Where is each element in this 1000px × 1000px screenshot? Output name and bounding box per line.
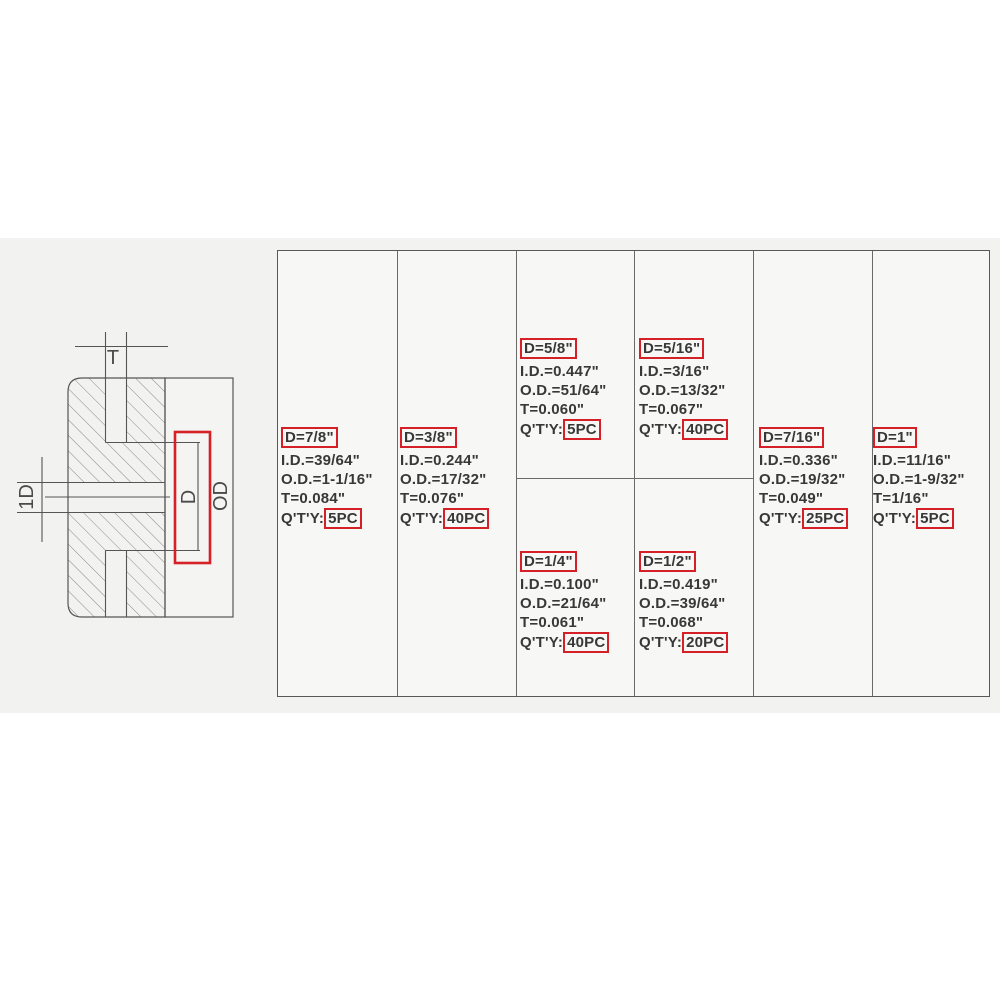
od-value: O.D.=1-9/32" xyxy=(873,470,965,489)
id-value: I.D.=0.419" xyxy=(639,575,728,594)
t-value: T=0.061" xyxy=(520,613,609,632)
t-value: T=1/16" xyxy=(873,489,965,508)
t-value: T=0.076" xyxy=(400,489,489,508)
od-value: O.D.=1-1/16" xyxy=(281,470,373,489)
column-divider-4 xyxy=(753,251,754,696)
spec-table: D=7/8" I.D.=39/64" O.D.=1-1/16" T=0.084"… xyxy=(277,250,990,697)
od-value: O.D.=13/32" xyxy=(639,381,728,400)
qty-value: 40PC xyxy=(563,632,609,653)
bottom-groove-slot xyxy=(106,551,127,617)
d-value: D=3/8" xyxy=(400,427,457,448)
qty-line: Q'T'Y:25PC xyxy=(759,508,848,527)
id-value: I.D.=0.244" xyxy=(400,451,489,470)
spec-cell-5-8: D=5/8" I.D.=0.447" O.D.=51/64" T=0.060" … xyxy=(520,338,606,438)
column-divider-3 xyxy=(634,251,635,696)
id-value: I.D.=39/64" xyxy=(281,451,373,470)
t-value: T=0.084" xyxy=(281,489,373,508)
center-bore-channel xyxy=(69,483,165,513)
qty-label: Q'T'Y: xyxy=(873,510,916,527)
qty-line: Q'T'Y:5PC xyxy=(281,508,373,527)
qty-label: Q'T'Y: xyxy=(400,510,443,527)
bore-dimension-label: 1D xyxy=(16,484,38,510)
qty-label: Q'T'Y: xyxy=(639,634,682,651)
groove-diameter-label: D xyxy=(178,490,200,504)
qty-line: Q'T'Y:40PC xyxy=(400,508,489,527)
spec-cell-1-4: D=1/4" I.D.=0.100" O.D.=21/64" T=0.061" … xyxy=(520,551,609,651)
id-value: I.D.=0.447" xyxy=(520,362,606,381)
row-divider-middle-columns xyxy=(516,478,753,479)
od-value: O.D.=17/32" xyxy=(400,470,489,489)
id-value: I.D.=0.336" xyxy=(759,451,848,470)
qty-value: 25PC xyxy=(802,508,848,529)
spec-cell-1: D=1" I.D.=11/16" O.D.=1-9/32" T=1/16" Q'… xyxy=(873,427,965,527)
id-value: I.D.=11/16" xyxy=(873,451,965,470)
t-value: T=0.049" xyxy=(759,489,848,508)
qty-label: Q'T'Y: xyxy=(281,510,324,527)
spec-cell-1-2: D=1/2" I.D.=0.419" O.D.=39/64" T=0.068" … xyxy=(639,551,728,651)
column-divider-1 xyxy=(397,251,398,696)
od-value: O.D.=19/32" xyxy=(759,470,848,489)
qty-value: 5PC xyxy=(563,419,601,440)
grommet-cross-section-diagram: T 1D D OD xyxy=(0,320,260,640)
column-divider-2 xyxy=(516,251,517,696)
d-value: D=1/2" xyxy=(639,551,696,572)
qty-label: Q'T'Y: xyxy=(520,634,563,651)
qty-label: Q'T'Y: xyxy=(759,510,802,527)
qty-value: 40PC xyxy=(682,419,728,440)
spec-cell-3-8: D=3/8" I.D.=0.244" O.D.=17/32" T=0.076" … xyxy=(400,427,489,527)
t-value: T=0.060" xyxy=(520,400,606,419)
t-dimension-lines xyxy=(75,332,168,378)
qty-line: Q'T'Y:40PC xyxy=(520,632,609,651)
t-value: T=0.067" xyxy=(639,400,728,419)
qty-label: Q'T'Y: xyxy=(520,421,563,438)
qty-value: 40PC xyxy=(443,508,489,529)
id-value: I.D.=3/16" xyxy=(639,362,728,381)
qty-label: Q'T'Y: xyxy=(639,421,682,438)
od-value: O.D.=21/64" xyxy=(520,594,609,613)
spec-cell-7-16: D=7/16" I.D.=0.336" O.D.=19/32" T=0.049"… xyxy=(759,427,848,527)
spec-cell-7-8: D=7/8" I.D.=39/64" O.D.=1-1/16" T=0.084"… xyxy=(281,427,373,527)
qty-value: 20PC xyxy=(682,632,728,653)
outer-diameter-label: OD xyxy=(210,481,232,511)
d-value: D=1/4" xyxy=(520,551,577,572)
qty-value: 5PC xyxy=(324,508,362,529)
qty-line: Q'T'Y:40PC xyxy=(639,419,728,438)
top-groove-slot xyxy=(106,379,127,443)
d-value: D=5/8" xyxy=(520,338,577,359)
od-value: O.D.=39/64" xyxy=(639,594,728,613)
qty-line: Q'T'Y:5PC xyxy=(520,419,606,438)
d-value: D=7/16" xyxy=(759,427,824,448)
t-value: T=0.068" xyxy=(639,613,728,632)
qty-value: 5PC xyxy=(916,508,954,529)
d-value: D=5/16" xyxy=(639,338,704,359)
d-value: D=1" xyxy=(873,427,917,448)
qty-line: Q'T'Y:5PC xyxy=(873,508,965,527)
d-value: D=7/8" xyxy=(281,427,338,448)
spec-cell-5-16: D=5/16" I.D.=3/16" O.D.=13/32" T=0.067" … xyxy=(639,338,728,438)
page: T 1D D OD D=7/8" I.D.=39/64" O.D.=1-1/16… xyxy=(0,0,1000,1000)
id-value: I.D.=0.100" xyxy=(520,575,609,594)
t-dimension-label: T xyxy=(107,347,119,369)
od-value: O.D.=51/64" xyxy=(520,381,606,400)
qty-line: Q'T'Y:20PC xyxy=(639,632,728,651)
